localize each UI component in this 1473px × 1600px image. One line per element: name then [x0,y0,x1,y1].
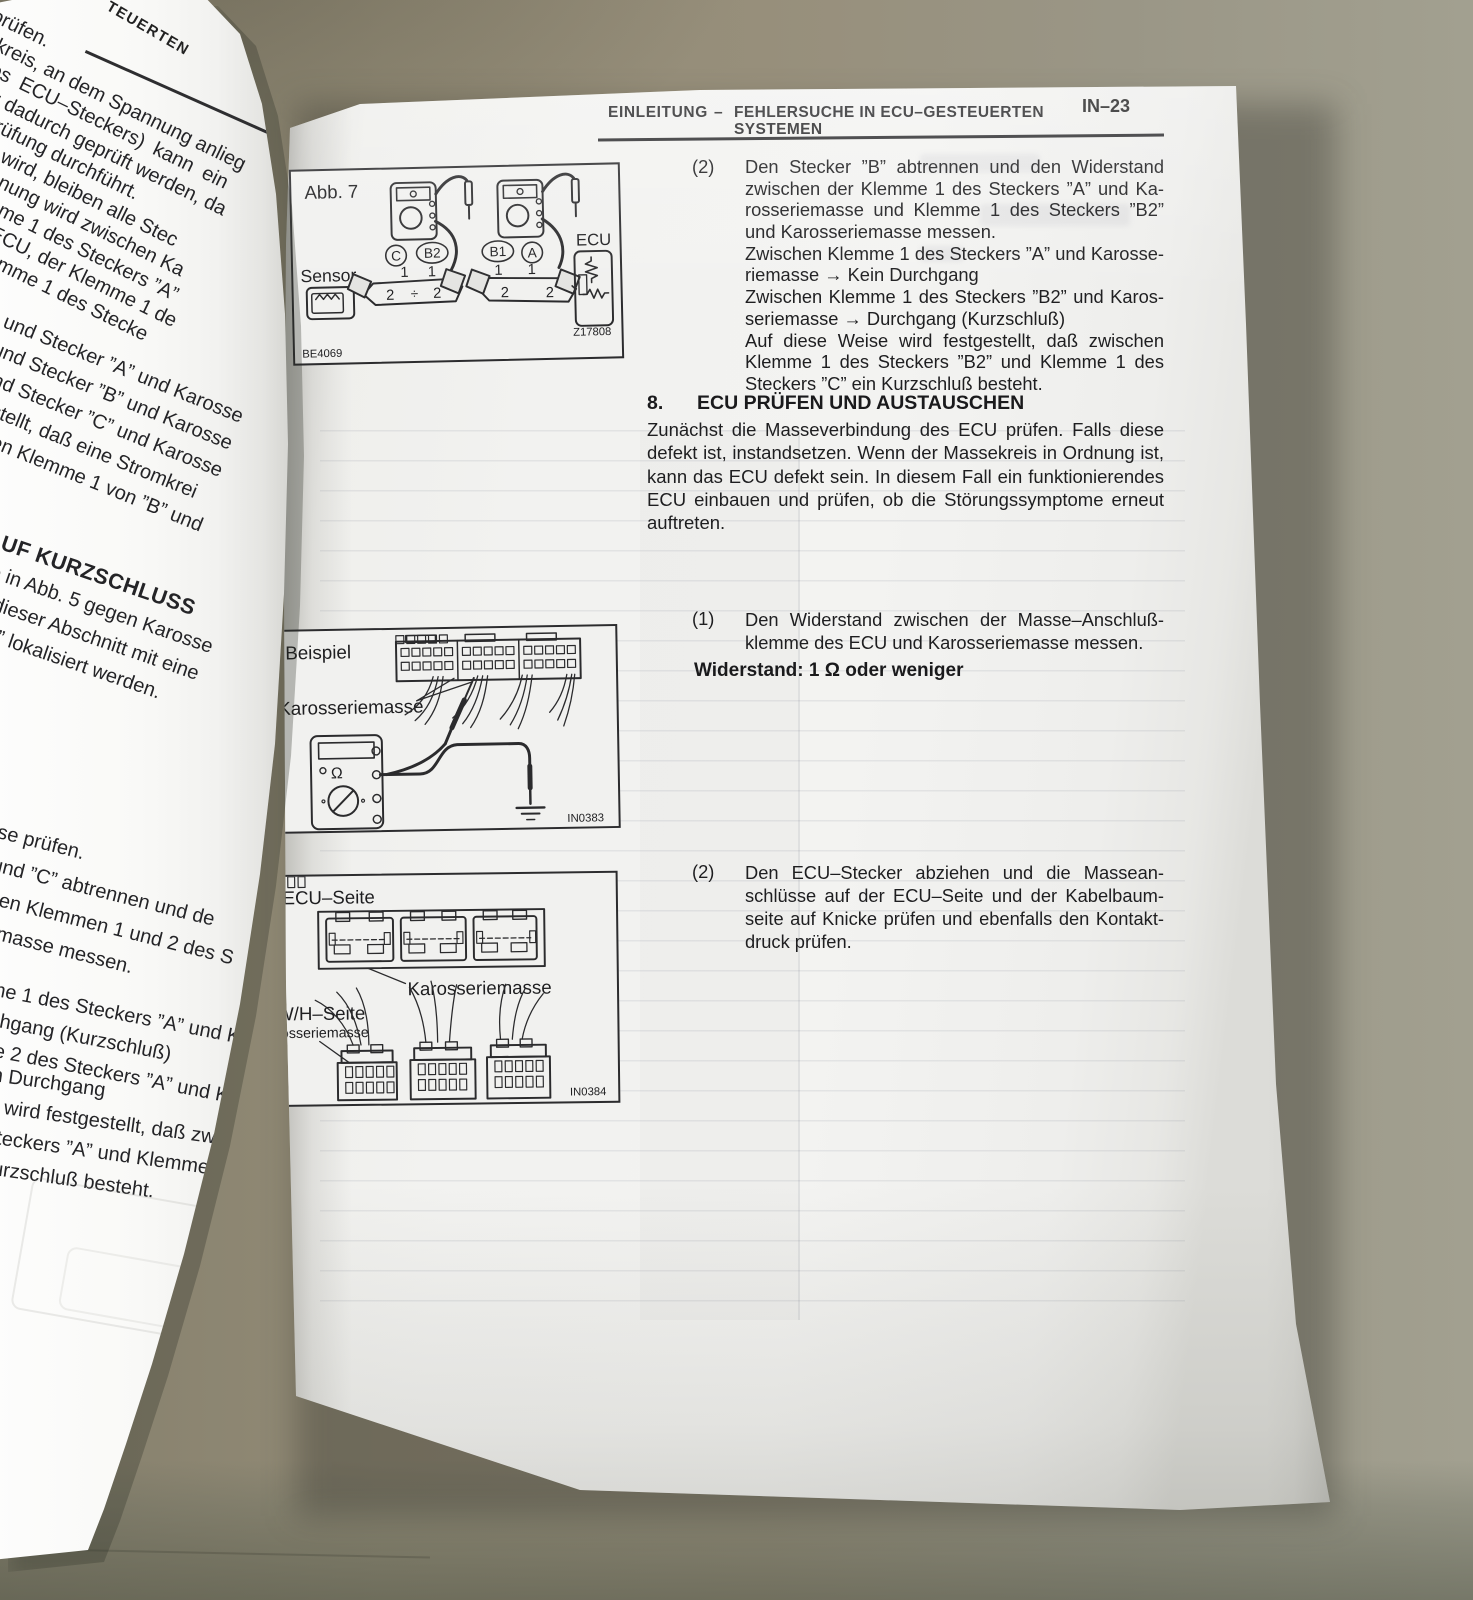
paragraph: Den Stecker ”B” abtrennen und den Widers… [745,156,1164,243]
leader-line [368,968,406,984]
section-number: 8. [647,392,697,415]
header-title: FEHLERSUCHE IN ECU–GESTEUERTEN SYSTEMEN [734,104,1044,138]
text-line: druck prüfen. [745,930,1164,953]
svg-text:Sensor: Sensor [300,265,356,286]
wire [542,174,574,192]
svg-text:B2: B2 [424,246,441,261]
ground-label: Karosseriemasse [259,1025,369,1042]
ground-icon [517,807,545,819]
ecu-side-connector-icon [318,909,545,969]
text-line: Den Widerstand zwischen der Masse–Anschl… [745,608,1164,631]
figure-caption: Abb. 7 [304,181,358,203]
left-header-fragment: TEUERTEN [104,0,193,59]
ecu-connector-icon [396,633,581,682]
test-probe-icon [530,766,531,804]
item-number: (1) [692,608,714,630]
figure-ecu-seite-connectors: ECU–Seite [254,871,621,1107]
wire [435,176,467,194]
specification-line: Widerstand: 1 Ω oder weniger [694,660,1164,682]
figure-code: BE4069 [302,348,342,361]
text-line: riemasse → Kein Durchgang [745,264,1164,286]
paragraph: Den Widerstand zwischen der Masse–Anschl… [745,608,1164,654]
svg-text:1: 1 [527,262,536,278]
text-line: klemme des ECU und Karosseriemasse messe… [745,631,1164,654]
test-probe-icon [465,181,473,218]
wire [542,218,563,267]
item-number: (2) [692,156,714,178]
svg-text:C: C [391,248,401,263]
figure-code: IN0383 [567,812,604,825]
text-line: schlüsse auf der ECU–Seite und der Kabel… [745,884,1164,907]
numbered-item-1: (1) Den Widerstand zwischen der Masse–An… [692,608,1164,682]
text-line: rosseriemasse und Klemme 1 des Steckers … [745,199,1164,221]
sensor-icon: Sensor [300,265,357,319]
text-line: seite auf Knicke prüfen und ebenfalls de… [745,907,1164,930]
text-line: und Karosseriemasse messen. [745,221,1164,243]
header-separator: – [714,104,723,122]
ground-label: Karosseriemasse [407,976,551,999]
wire-bundle-icons [404,674,575,730]
svg-text:2: 2 [546,285,555,301]
text-line: Zwischen Klemme 1 des Steckers ”A” und K… [745,243,1164,265]
figure-beispiel-ground-check: Beispiel Karosseriemas [266,624,621,834]
svg-text:1: 1 [428,264,437,280]
paragraph: Den ECU–Stecker abziehen und die Massean… [745,861,1164,953]
numbered-item-2-bottom: (2) Den ECU–Stecker abziehen und die Mas… [692,861,1164,953]
text-line: seriemasse → Durchgang (Kurzschluß) [745,308,1164,330]
figure-abb7-circuit-diagram: Abb. 7 Sensor [289,162,624,365]
paragraph: Zwischen Klemme 1 des Steckers ”A” und K… [745,243,1164,286]
figure-caption: ECU–Seite [282,886,375,908]
paragraph: Auf diese Weise wird festgestellt, daß z… [745,330,1164,395]
item-number: (2) [692,861,714,883]
header-section-label: EINLEITUNG [608,104,708,122]
svg-text:1: 1 [400,265,409,281]
test-probe-icon [444,678,475,744]
wire [386,744,446,775]
paragraph: Zwischen Klemme 1 des Steckers ”B2” und … [745,286,1164,329]
text-line: Den Stecker ”B” abtrennen und den Widers… [745,156,1164,178]
figure-code: Z17808 [573,326,611,339]
ground-label: Karosseriemasse [278,696,424,720]
left-text-block: AUF KURZSCHLUSS vie in Abb. 5 gegen Karo… [0,522,227,718]
text-line: Auf diese Weise wird festgestellt, daß z… [745,330,1164,352]
manual-right-page: EINLEITUNG – FEHLERSUCHE IN ECU–GESTEUER… [280,84,1336,1514]
leader-line [320,1041,350,1063]
numbered-item-2-top: (2) Den Stecker ”B” abtrennen und den Wi… [692,156,1164,395]
svg-text:B1: B1 [489,244,506,259]
svg-text:1: 1 [494,263,503,279]
figure-code: IN0384 [570,1086,607,1098]
header-title-line1: FEHLERSUCHE IN ECU–GESTEUERTEN [734,104,1044,121]
svg-text:ECU: ECU [576,230,612,250]
photo-of-open-service-manual: EINLEITUNG – FEHLERSUCHE IN ECU–GESTEUER… [0,0,1473,1600]
section-8-heading: 8.ECU PRÜFEN UND AUSTAUSCHEN [647,392,1024,415]
svg-text:÷: ÷ [410,286,418,301]
text-line: Den ECU–Stecker abziehen und die Massean… [745,861,1164,884]
wire-harness-icon [486,984,550,1099]
multimeter-icon [390,182,436,240]
multimeter-icon: Ω [310,735,383,829]
svg-text:2: 2 [386,288,395,304]
svg-text:2: 2 [501,285,510,301]
left-text-block: sse prüfen.” und ”C” abtrennen und den d… [0,814,253,1007]
svg-text:2: 2 [433,286,442,302]
svg-text:Ω: Ω [331,765,343,782]
text-line: zwischen der Klemme 1 des Steckers ”A” u… [745,178,1164,200]
text-line: Klemme 1 des Steckers ”B2” und Klemme 1 … [745,351,1164,373]
connector-labels: C B2 B1 A [385,240,542,266]
section-title: ECU PRÜFEN UND AUSTAUSCHEN [697,392,1024,414]
section-8-body: Zunächst die Masseverbindung des ECU prü… [647,418,1164,534]
page-number: IN–23 [1082,96,1130,117]
svg-text:A: A [527,245,537,260]
text-line: Zwischen Klemme 1 des Steckers ”B2” und … [745,286,1164,308]
